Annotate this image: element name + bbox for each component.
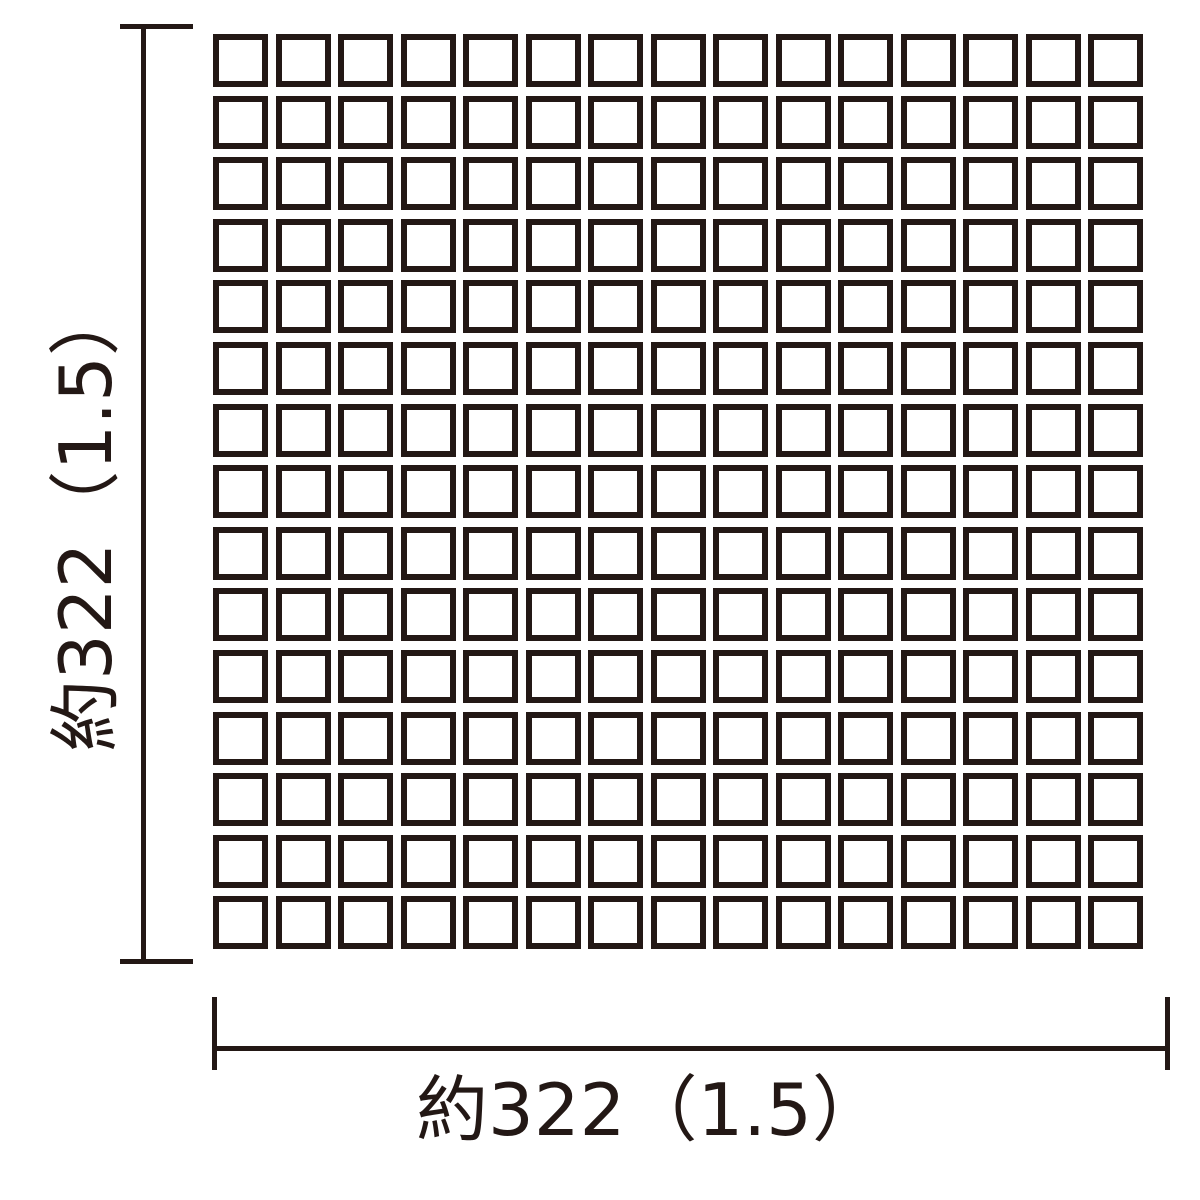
tile-chip (401, 588, 456, 641)
tile-chip (1088, 896, 1143, 949)
tile-chip (713, 219, 768, 272)
tile-chip (963, 404, 1018, 457)
tile-chip (588, 280, 643, 333)
tile-chip (588, 588, 643, 641)
tile-chip (588, 404, 643, 457)
bottom-dimension-line (212, 1046, 1170, 1051)
tile-chip (338, 465, 393, 518)
tile-chip (838, 896, 893, 949)
tile-chip (1088, 465, 1143, 518)
tile-chip (1026, 404, 1081, 457)
tile-chip (588, 96, 643, 149)
bottom-dimension-cap-left (212, 997, 217, 1070)
tile-chip (713, 465, 768, 518)
tile-chip (276, 96, 331, 149)
tile-chip (276, 712, 331, 765)
tile-chip (963, 712, 1018, 765)
tile-chip (713, 280, 768, 333)
tile-chip (463, 527, 518, 580)
tile-chip (1088, 219, 1143, 272)
left-dimension-line (141, 24, 146, 964)
tile-chip (963, 835, 1018, 888)
tile-chip (526, 342, 581, 395)
tile-chip (963, 588, 1018, 641)
tile-chip (713, 650, 768, 703)
tile-chip (838, 404, 893, 457)
tile-chip (651, 404, 706, 457)
tile-chip (838, 465, 893, 518)
tile-chip (338, 896, 393, 949)
tile-chip (713, 157, 768, 210)
tile-chip (276, 650, 331, 703)
tile-chip (213, 280, 268, 333)
tile-chip (213, 404, 268, 457)
tile-chip (713, 835, 768, 888)
tile-chip (213, 342, 268, 395)
tile-chip (776, 280, 831, 333)
tile-chip (1026, 342, 1081, 395)
tile-chip (401, 34, 456, 87)
tile-chip (776, 588, 831, 641)
tile-chip (901, 650, 956, 703)
tile-chip (1026, 465, 1081, 518)
tile-chip (463, 465, 518, 518)
tile-chip (401, 342, 456, 395)
tile-sheet-dimension-diagram: 約322（1.5） 約322（1.5） (0, 0, 1200, 1200)
tile-chip (338, 219, 393, 272)
tile-chip (213, 157, 268, 210)
tile-chip (651, 896, 706, 949)
tile-chip (401, 650, 456, 703)
tile-chip (526, 157, 581, 210)
tile-chip (401, 835, 456, 888)
tile-chip (1088, 342, 1143, 395)
tile-chip (776, 835, 831, 888)
tile-chip (213, 527, 268, 580)
tile-chip (1026, 34, 1081, 87)
tile-chip (1026, 896, 1081, 949)
tile-chip (901, 342, 956, 395)
tile-chip (838, 588, 893, 641)
tile-chip (776, 527, 831, 580)
tile-chip (838, 219, 893, 272)
tile-chip (901, 219, 956, 272)
tile-chip (463, 773, 518, 826)
tile-chip (1088, 96, 1143, 149)
left-dimension-cap-top (120, 24, 193, 29)
tile-chip (776, 96, 831, 149)
tile-chip (713, 712, 768, 765)
tile-chip (401, 404, 456, 457)
tile-chip (838, 342, 893, 395)
tile-chip (401, 465, 456, 518)
tile-chip (463, 342, 518, 395)
tile-chip (526, 465, 581, 518)
tile-chip (463, 96, 518, 149)
tile-chip (901, 712, 956, 765)
tile-chip (338, 835, 393, 888)
tile-chip (1088, 527, 1143, 580)
tile-chip (776, 712, 831, 765)
tile-chip (588, 219, 643, 272)
tile-chip (963, 527, 1018, 580)
tile-chip (463, 588, 518, 641)
tile-chip (713, 342, 768, 395)
tile-chip (1026, 773, 1081, 826)
tile-chip (1026, 588, 1081, 641)
tile-chip (1026, 650, 1081, 703)
tile-chip (713, 773, 768, 826)
tile-chip (963, 96, 1018, 149)
bottom-dimension-cap-right (1165, 997, 1170, 1070)
tile-chip (526, 835, 581, 888)
tile-chip (338, 773, 393, 826)
tile-chip (901, 404, 956, 457)
tile-chip (276, 465, 331, 518)
tile-chip (838, 527, 893, 580)
tile-chip (526, 404, 581, 457)
tile-chip (276, 404, 331, 457)
tile-chip (526, 34, 581, 87)
mosaic-tile-grid (213, 34, 1143, 949)
tile-chip (963, 773, 1018, 826)
tile-chip (901, 34, 956, 87)
tile-chip (838, 96, 893, 149)
tile-chip (338, 96, 393, 149)
tile-chip (651, 157, 706, 210)
tile-chip (338, 280, 393, 333)
tile-chip (1026, 219, 1081, 272)
tile-chip (338, 34, 393, 87)
tile-chip (651, 96, 706, 149)
tile-chip (588, 650, 643, 703)
tile-chip (1088, 404, 1143, 457)
tile-chip (338, 404, 393, 457)
tile-chip (276, 34, 331, 87)
tile-chip (838, 773, 893, 826)
tile-chip (526, 527, 581, 580)
left-dimension-cap-bottom (120, 959, 193, 964)
tile-chip (713, 96, 768, 149)
tile-chip (651, 835, 706, 888)
tile-chip (276, 835, 331, 888)
tile-chip (713, 527, 768, 580)
tile-chip (463, 650, 518, 703)
tile-chip (463, 896, 518, 949)
tile-chip (588, 773, 643, 826)
tile-chip (776, 465, 831, 518)
tile-chip (526, 219, 581, 272)
tile-chip (401, 96, 456, 149)
tile-chip (1026, 280, 1081, 333)
tile-chip (838, 650, 893, 703)
tile-chip (838, 34, 893, 87)
tile-chip (588, 896, 643, 949)
tile-chip (401, 219, 456, 272)
tile-chip (401, 280, 456, 333)
tile-chip (963, 342, 1018, 395)
tile-chip (213, 896, 268, 949)
tile-chip (963, 34, 1018, 87)
tile-chip (651, 712, 706, 765)
tile-chip (651, 588, 706, 641)
tile-chip (1088, 280, 1143, 333)
tile-chip (463, 280, 518, 333)
bottom-dimension-label: 約322（1.5） (416, 1074, 884, 1146)
tile-chip (713, 404, 768, 457)
tile-chip (338, 650, 393, 703)
tile-chip (651, 280, 706, 333)
tile-chip (338, 712, 393, 765)
tile-chip (213, 588, 268, 641)
tile-chip (588, 712, 643, 765)
tile-chip (213, 96, 268, 149)
tile-chip (1026, 712, 1081, 765)
tile-chip (213, 219, 268, 272)
tile-chip (901, 896, 956, 949)
tile-chip (838, 835, 893, 888)
tile-chip (1088, 157, 1143, 210)
tile-chip (963, 650, 1018, 703)
tile-chip (901, 527, 956, 580)
tile-chip (651, 773, 706, 826)
tile-chip (213, 773, 268, 826)
tile-chip (276, 219, 331, 272)
tile-chip (838, 712, 893, 765)
tile-chip (526, 896, 581, 949)
tile-chip (526, 96, 581, 149)
tile-chip (776, 896, 831, 949)
tile-chip (651, 219, 706, 272)
tile-chip (213, 34, 268, 87)
tile-chip (1026, 157, 1081, 210)
tile-chip (776, 157, 831, 210)
tile-chip (963, 157, 1018, 210)
tile-chip (213, 712, 268, 765)
tile-chip (901, 96, 956, 149)
tile-chip (901, 465, 956, 518)
tile-chip (526, 773, 581, 826)
tile-chip (1088, 712, 1143, 765)
left-dimension-label: 約322（1.5） (50, 284, 122, 752)
tile-chip (1088, 773, 1143, 826)
tile-chip (588, 157, 643, 210)
tile-chip (276, 527, 331, 580)
tile-chip (1026, 527, 1081, 580)
tile-chip (463, 157, 518, 210)
tile-chip (963, 280, 1018, 333)
tile-chip (276, 896, 331, 949)
tile-chip (588, 527, 643, 580)
tile-chip (338, 588, 393, 641)
tile-chip (1088, 34, 1143, 87)
tile-chip (526, 280, 581, 333)
tile-chip (1026, 835, 1081, 888)
tile-chip (401, 527, 456, 580)
tile-chip (776, 342, 831, 395)
tile-chip (1088, 650, 1143, 703)
tile-chip (526, 712, 581, 765)
tile-chip (901, 157, 956, 210)
tile-chip (713, 588, 768, 641)
tile-chip (463, 404, 518, 457)
tile-chip (901, 280, 956, 333)
tile-chip (651, 34, 706, 87)
tile-chip (213, 465, 268, 518)
tile-chip (838, 157, 893, 210)
tile-chip (276, 157, 331, 210)
tile-chip (463, 219, 518, 272)
tile-chip (338, 157, 393, 210)
tile-chip (213, 650, 268, 703)
tile-chip (1026, 96, 1081, 149)
tile-chip (588, 34, 643, 87)
tile-chip (588, 835, 643, 888)
tile-chip (713, 896, 768, 949)
tile-chip (713, 34, 768, 87)
tile-chip (276, 773, 331, 826)
tile-chip (963, 219, 1018, 272)
tile-chip (338, 527, 393, 580)
tile-chip (213, 835, 268, 888)
tile-chip (651, 650, 706, 703)
tile-chip (1088, 835, 1143, 888)
tile-chip (651, 465, 706, 518)
tile-chip (963, 465, 1018, 518)
tile-chip (901, 588, 956, 641)
tile-chip (401, 773, 456, 826)
tile-chip (338, 342, 393, 395)
tile-chip (651, 342, 706, 395)
tile-chip (776, 773, 831, 826)
tile-chip (276, 588, 331, 641)
tile-chip (401, 896, 456, 949)
tile-chip (463, 712, 518, 765)
tile-chip (776, 404, 831, 457)
tile-chip (651, 527, 706, 580)
tile-chip (776, 219, 831, 272)
tile-chip (1088, 588, 1143, 641)
tile-chip (838, 280, 893, 333)
tile-chip (963, 896, 1018, 949)
tile-chip (463, 835, 518, 888)
tile-chip (776, 650, 831, 703)
tile-chip (588, 465, 643, 518)
tile-chip (776, 34, 831, 87)
tile-chip (276, 280, 331, 333)
tile-chip (526, 588, 581, 641)
tile-chip (526, 650, 581, 703)
tile-chip (588, 342, 643, 395)
tile-chip (463, 34, 518, 87)
tile-chip (401, 712, 456, 765)
tile-chip (401, 157, 456, 210)
tile-chip (276, 342, 331, 395)
tile-chip (901, 835, 956, 888)
tile-chip (901, 773, 956, 826)
